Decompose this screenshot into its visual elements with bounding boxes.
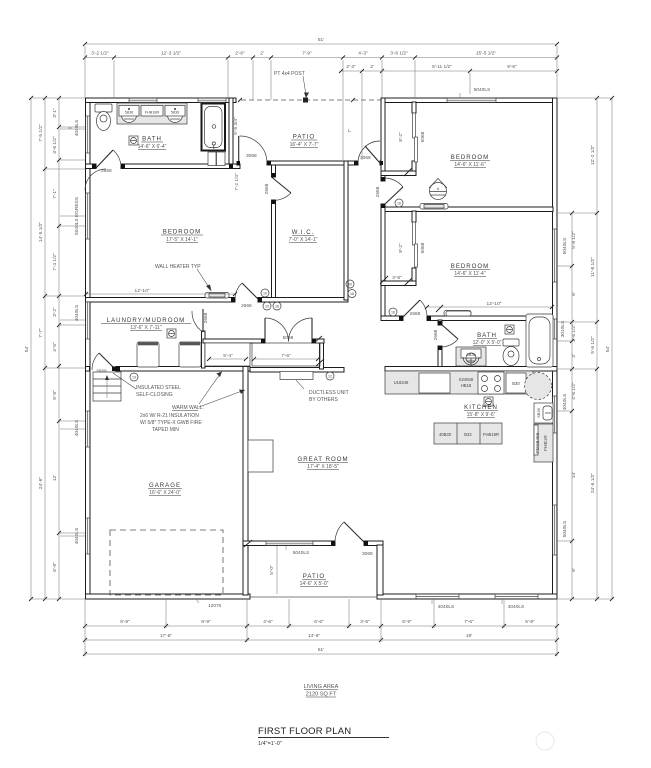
svg-text:7'-5 1/2": 7'-5 1/2" — [38, 124, 44, 142]
svg-text:6'-6": 6'-6" — [314, 619, 324, 625]
svg-text:5040LS: 5040LS — [474, 87, 491, 93]
svg-text:4040LS: 4040LS — [74, 420, 80, 437]
svg-text:3068: 3068 — [362, 551, 373, 557]
svg-text:7'-2 1/4": 7'-2 1/4" — [234, 173, 240, 191]
svg-text:BATH: BATH — [477, 332, 497, 339]
svg-text:3068: 3068 — [360, 155, 371, 161]
svg-text:FIRST FLOOR PLAN: FIRST FLOOR PLAN — [258, 726, 351, 737]
svg-text:12: 12 — [328, 375, 332, 379]
svg-text:12'-3 1/2": 12'-3 1/2" — [161, 51, 182, 57]
svg-text:17'-4" X 18'-5": 17'-4" X 18'-5" — [307, 464, 339, 470]
svg-text:14': 14' — [571, 472, 577, 478]
svg-text:5068: 5068 — [420, 242, 426, 253]
svg-text:12070: 12070 — [208, 603, 222, 609]
svg-text:5040LS: 5040LS — [562, 521, 568, 538]
svg-text:9'-6": 9'-6" — [507, 64, 517, 70]
svg-text:7': 7' — [347, 129, 353, 133]
svg-text:GREAT ROOM: GREAT ROOM — [297, 456, 348, 463]
svg-text:24'-6 1/2": 24'-6 1/2" — [590, 473, 596, 494]
svg-text:PATIO: PATIO — [293, 134, 315, 141]
svg-text:3'-2 1/2": 3'-2 1/2" — [91, 51, 109, 57]
svg-text:5040LS: 5040LS — [293, 550, 310, 556]
svg-text:16: 16 — [350, 292, 354, 296]
svg-text:2120 SQ FT: 2120 SQ FT — [306, 692, 337, 698]
svg-text:KITCHEN: KITCHEN — [464, 404, 498, 411]
svg-text:6'-9": 6'-9" — [52, 562, 58, 572]
svg-text:17'-5" X 14'-1": 17'-5" X 14'-1" — [166, 237, 198, 243]
svg-text:PATIO: PATIO — [303, 573, 325, 580]
svg-text:5'-11 1/2": 5'-11 1/2" — [432, 64, 452, 70]
svg-text:4040LS: 4040LS — [74, 120, 80, 137]
svg-text:2'-6 1/2": 2'-6 1/2" — [571, 324, 577, 342]
svg-text:4'-5": 4'-5" — [52, 342, 58, 352]
svg-text:4'-6": 4'-6" — [263, 619, 273, 625]
svg-text:LIVING AREA: LIVING AREA — [304, 684, 339, 690]
svg-text:INSULATED STEEL: INSULATED STEEL — [136, 385, 181, 391]
svg-text:2668: 2668 — [375, 186, 381, 197]
svg-text:3068: 3068 — [246, 153, 257, 159]
svg-text:FHB1R: FHB1R — [543, 435, 549, 451]
svg-text:2668: 2668 — [433, 329, 439, 340]
svg-text:2668: 2668 — [203, 312, 209, 323]
svg-text:BY OTHERS: BY OTHERS — [309, 397, 338, 403]
svg-text:16: 16 — [275, 305, 279, 309]
svg-text:17'-6": 17'-6" — [160, 633, 173, 639]
svg-text:11'-8 1/2": 11'-8 1/2" — [590, 257, 596, 277]
svg-text:3'-6": 3'-6" — [360, 619, 370, 625]
svg-text:5'-8 1/2": 5'-8 1/2" — [571, 231, 577, 249]
svg-text:8'-2": 8'-2" — [398, 132, 404, 142]
svg-text:51': 51' — [318, 647, 324, 653]
svg-text:4040LS: 4040LS — [508, 604, 525, 610]
svg-text:3'-6 1/2": 3'-6 1/2" — [390, 51, 408, 57]
svg-text:TAPED MIN: TAPED MIN — [152, 427, 179, 433]
svg-text:7'-1": 7'-1" — [52, 189, 58, 199]
svg-text:24'-6": 24'-6" — [38, 477, 44, 490]
svg-text:B32: B32 — [464, 432, 472, 437]
svg-text:13: 13 — [132, 376, 136, 380]
svg-text:5'-0": 5'-0" — [269, 565, 275, 575]
svg-text:14'-5 1/2": 14'-5 1/2" — [38, 222, 44, 243]
svg-text:7'-0" X 14'-1": 7'-0" X 14'-1" — [289, 237, 318, 243]
svg-text:S24848: S24848 — [459, 377, 474, 382]
svg-text:14'-6" X 6'-4": 14'-6" X 6'-4" — [138, 144, 167, 150]
svg-text:10: 10 — [265, 305, 269, 309]
svg-text:3'-6 1/2": 3'-6 1/2" — [52, 136, 58, 154]
svg-text:BEDROOM: BEDROOM — [163, 229, 202, 236]
svg-text:5068: 5068 — [420, 131, 426, 142]
svg-text:12'-10": 12'-10" — [487, 301, 502, 307]
svg-text:BEDROOM: BEDROOM — [451, 154, 490, 161]
svg-text:3'-8": 3'-8" — [392, 275, 402, 281]
svg-text:12'-2 1/2": 12'-2 1/2" — [590, 145, 596, 166]
svg-text:10: 10 — [263, 292, 267, 296]
svg-text:6': 6' — [571, 292, 577, 296]
svg-text:4040LS: 4040LS — [74, 305, 80, 322]
svg-text:3': 3' — [571, 354, 577, 358]
svg-text:SB36: SB36 — [536, 407, 541, 418]
svg-text:3010LS: 3010LS — [560, 321, 566, 338]
svg-text:FHB18R: FHB18R — [483, 432, 499, 437]
svg-text:5'-9": 5'-9" — [525, 619, 535, 625]
svg-text:15'-5 1/2": 15'-5 1/2" — [476, 51, 497, 57]
svg-text:3'-2": 3'-2" — [52, 307, 58, 317]
svg-text:HB18: HB18 — [461, 383, 472, 388]
svg-text:2668: 2668 — [410, 311, 421, 317]
svg-text:W.I.C.: W.I.C. — [292, 229, 315, 236]
svg-text:FHB18R: FHB18R — [145, 111, 160, 115]
svg-text:PDSB455: PDSB455 — [535, 432, 541, 453]
svg-text:4'-6 1/2": 4'-6 1/2" — [571, 382, 577, 400]
svg-text:14'-6" X 11'-4": 14'-6" X 11'-4" — [454, 271, 485, 277]
svg-text:3'-1": 3'-1" — [52, 108, 58, 118]
svg-text:16: 16 — [391, 311, 395, 315]
svg-text:15'-8" X 9'-6": 15'-8" X 9'-6" — [467, 412, 496, 418]
svg-text:4040LS: 4040LS — [438, 604, 455, 610]
svg-text:54': 54' — [24, 346, 30, 352]
svg-text:7'-7": 7'-7" — [38, 328, 44, 338]
svg-text:7'-9": 7'-9" — [302, 51, 312, 57]
svg-text:2668: 2668 — [241, 303, 252, 309]
svg-text:U18248: U18248 — [394, 380, 409, 385]
svg-text:WARM WALL:: WARM WALL: — [172, 405, 204, 411]
svg-text:12'-10": 12'-10" — [135, 288, 150, 294]
svg-text:5'-6 1/2": 5'-6 1/2" — [590, 336, 596, 354]
svg-text:16'-6" X 24'-0": 16'-6" X 24'-0" — [149, 490, 181, 496]
svg-text:16: 16 — [397, 202, 401, 206]
svg-text:GARAGE: GARAGE — [149, 482, 181, 489]
svg-text:5'-9": 5'-9" — [402, 619, 412, 625]
svg-text:1/4"=1'-0": 1/4"=1'-0" — [258, 741, 282, 747]
svg-text:5836: 5836 — [125, 111, 133, 115]
svg-text:5040LS: 5040LS — [562, 238, 568, 255]
svg-text:2668: 2668 — [264, 183, 270, 194]
svg-text:7'-4 1/2": 7'-4 1/2" — [52, 253, 58, 271]
svg-text:14'-6": 14'-6" — [308, 633, 321, 639]
svg-text:B30: B30 — [512, 381, 520, 386]
svg-text:7'-6": 7'-6" — [281, 353, 291, 359]
svg-text:14'-6" X 11'-6": 14'-6" X 11'-6" — [454, 162, 485, 168]
svg-text:WALL HEATER TYP: WALL HEATER TYP — [155, 264, 201, 270]
svg-text:PT 4x4 POST: PT 4x4 POST — [274, 71, 305, 77]
svg-text:4040LS: 4040LS — [562, 394, 568, 411]
svg-text:5'-9": 5'-9" — [52, 390, 58, 400]
svg-text:12'-0" X 5'-0": 12'-0" X 5'-0" — [473, 340, 502, 346]
svg-text:8'-2": 8'-2" — [398, 243, 404, 253]
svg-text:2': 2' — [260, 51, 264, 57]
svg-text:7'-6": 7'-6" — [464, 619, 474, 625]
svg-text:BEDROOM: BEDROOM — [451, 263, 490, 270]
svg-text:12': 12' — [52, 475, 58, 481]
svg-text:5'-9 3/4": 5'-9 3/4" — [233, 117, 239, 135]
svg-text:W/ 5/8" TYPE-X GWB FIRE: W/ 5/8" TYPE-X GWB FIRE — [140, 420, 202, 426]
svg-text:BATH: BATH — [142, 136, 162, 143]
svg-text:19': 19' — [466, 633, 472, 639]
svg-text:5836: 5836 — [171, 111, 179, 115]
svg-text:2'-6": 2'-6" — [235, 51, 245, 57]
svg-text:DUCTLESS UNIT: DUCTLESS UNIT — [309, 390, 349, 396]
svg-text:8'-9": 8'-9" — [201, 619, 211, 625]
svg-text:5'-4": 5'-4" — [223, 353, 233, 359]
svg-text:2x6 W/ R-21 INSULATION: 2x6 W/ R-21 INSULATION — [140, 413, 199, 419]
svg-text:SELF-CLOSING: SELF-CLOSING — [136, 392, 173, 398]
svg-text:6': 6' — [571, 568, 577, 572]
svg-text:5068: 5068 — [283, 335, 294, 341]
svg-text:2': 2' — [370, 64, 374, 70]
svg-text:13'-6" X 7'-11": 13'-6" X 7'-11" — [130, 325, 161, 331]
svg-text:10: 10 — [348, 283, 352, 287]
svg-text:14'-6" X 5'-0": 14'-6" X 5'-0" — [300, 581, 329, 587]
svg-text:LAUNDRY/MUDROOM: LAUNDRY/MUDROOM — [107, 317, 186, 324]
svg-text:8'-9": 8'-9" — [120, 619, 130, 625]
svg-text:40B30: 40B30 — [439, 432, 452, 437]
svg-text:4'-3": 4'-3" — [358, 51, 368, 57]
svg-text:2'-3": 2'-3" — [346, 64, 356, 70]
svg-text:54': 54' — [605, 346, 611, 352]
svg-text:16'-4" X 7'-7": 16'-4" X 7'-7" — [290, 142, 319, 148]
svg-text:51': 51' — [318, 37, 324, 43]
